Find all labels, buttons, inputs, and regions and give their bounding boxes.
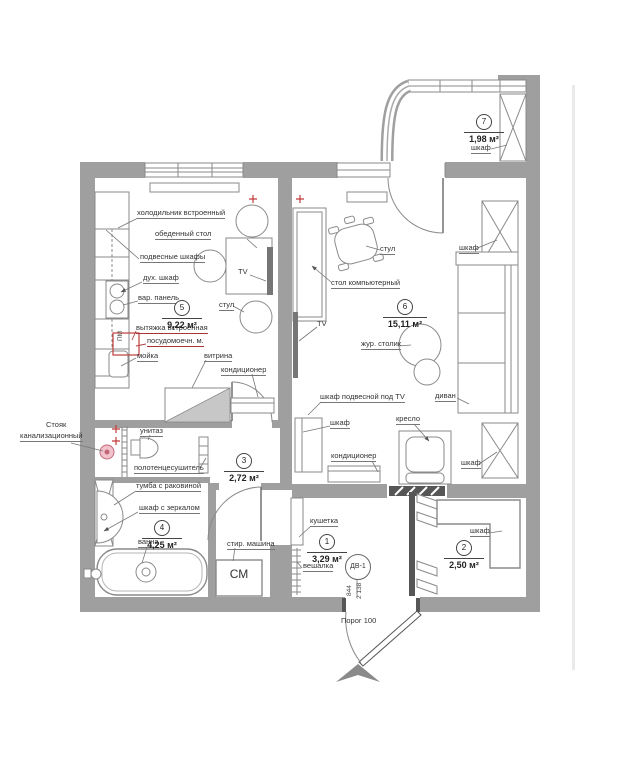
- room-area-7: 1,98 м²: [464, 132, 504, 144]
- vanity-sink: [97, 491, 123, 543]
- label-chair-living: стул: [380, 245, 395, 255]
- room-tag-2: 2 2,50 м²: [444, 537, 484, 570]
- label-ac-kitchen: кондиционер: [221, 366, 266, 376]
- room-num-6: 6: [397, 299, 413, 315]
- washer-mark: СМ: [216, 567, 262, 581]
- room-tag-4: 4 4,25 м²: [142, 517, 182, 550]
- room-num-3: 3: [236, 453, 252, 469]
- room-num-1: 1: [319, 534, 335, 550]
- label-dining-table: обеденный стол: [155, 230, 211, 240]
- wardrobe-bottom-right: [482, 423, 518, 478]
- label-washer: стир. машина: [227, 540, 275, 550]
- label-oven: дух. шкаф: [143, 274, 179, 284]
- kitchen-window: [145, 163, 243, 192]
- label-ac-living: кондиционер: [331, 452, 376, 462]
- room-area-6: 15,11 м²: [383, 317, 427, 329]
- riser-shaft: [100, 425, 127, 477]
- label-sink: мойка: [137, 352, 158, 362]
- dim-door-width: 844: [346, 585, 353, 596]
- tv-living-unit: [293, 312, 298, 378]
- label-cabinet-living-left: шкаф: [330, 419, 350, 429]
- label-mirror-cabinet: шкаф с зеркалом: [139, 504, 200, 514]
- page-edge: [572, 85, 575, 670]
- ac-kitchen-unit: [231, 398, 274, 413]
- label-wardrobe-top: шкаф: [459, 244, 479, 254]
- computer-desk: [293, 208, 326, 321]
- label-dishwasher: посудомоечн. м.: [147, 337, 204, 347]
- room-tag-3: 3 2,72 м²: [224, 450, 264, 483]
- room-tag-6: 6 15,11 м²: [383, 296, 427, 329]
- label-vanity: тумба с раковиной: [136, 482, 201, 492]
- office-chair: [327, 211, 384, 271]
- utility-cross-marks: [249, 195, 304, 203]
- room-num-7: 7: [476, 114, 492, 130]
- room-tag-5: 5 9,22 м²: [162, 297, 202, 330]
- label-tv-wall-cabinet: шкаф подвесной под TV: [320, 393, 405, 403]
- label-coffee-table: жур. столик: [361, 340, 401, 350]
- label-vitrina: витрина: [204, 352, 232, 362]
- plan-drawing: [0, 0, 620, 775]
- room-area-3: 2,72 м²: [224, 471, 264, 483]
- room-area-4: 4,25 м²: [142, 538, 182, 550]
- floor-plan: холодильник встроенный обеденный стол по…: [0, 0, 620, 775]
- tv-kitchen-unit: [267, 247, 273, 295]
- label-tv-living: TV: [317, 320, 327, 329]
- cabinet-living-left: [295, 418, 322, 472]
- label-fridge: холодильник встроенный: [137, 209, 225, 219]
- label-sofa: диван: [435, 392, 456, 402]
- label-towel-dryer: полотенцесушитель: [134, 464, 204, 474]
- room-num-4: 4: [154, 520, 170, 536]
- label-riser-1: Стояк: [46, 421, 66, 430]
- room-tag-7: 7 1,98 м²: [464, 111, 504, 144]
- label-hanging-cabinets: подвесные шкафы: [140, 253, 205, 263]
- label-wardrobe-bottom: шкаф: [461, 459, 481, 469]
- balcony-door: [388, 178, 443, 233]
- label-wardrobe-room2: шкаф: [470, 527, 490, 537]
- ac-living-unit: [328, 466, 380, 482]
- label-threshold: Порог 100: [341, 617, 376, 626]
- room-area-5: 9,22 м²: [162, 318, 202, 330]
- bathtub: [84, 549, 207, 595]
- label-wardrobe-balcony: шкаф: [471, 144, 491, 154]
- label-pm: ПМ: [117, 331, 124, 341]
- dining-table: [226, 238, 272, 294]
- room-num-2: 2: [456, 540, 472, 556]
- dim-door-height: 2 138: [356, 583, 363, 599]
- sofa: [456, 252, 518, 413]
- room-area-2: 2,50 м²: [444, 558, 484, 570]
- room-num-5: 5: [174, 300, 190, 316]
- label-chair-kitchen: стул: [219, 301, 234, 311]
- label-tv-kitchen: TV: [238, 268, 248, 277]
- toilet: [131, 438, 158, 458]
- label-computer-desk: стол компьютерный: [331, 279, 400, 289]
- room2-door-track: [409, 492, 415, 596]
- room-area-1: 3,29 м²: [307, 552, 347, 564]
- door-tag: ДВ-1: [345, 554, 371, 580]
- armchair: [399, 431, 451, 484]
- balcony-curved-wall: [387, 86, 409, 161]
- balcony-glazing: [408, 80, 526, 92]
- coffee-table: [399, 324, 441, 385]
- label-toilet: унитаз: [140, 427, 163, 437]
- entrance-arrow: [336, 664, 380, 682]
- room2-door-leaves: [417, 494, 437, 594]
- label-couch: кушетка: [310, 517, 338, 527]
- coat-rack: [292, 548, 301, 595]
- label-riser-2: канализационный: [20, 432, 83, 442]
- label-armchair: кресло: [396, 415, 420, 425]
- room-tag-1: 1 3,29 м²: [307, 531, 347, 564]
- cooktop: [106, 281, 128, 318]
- hall-bench: [291, 498, 303, 545]
- vitrina-niche: [165, 388, 230, 422]
